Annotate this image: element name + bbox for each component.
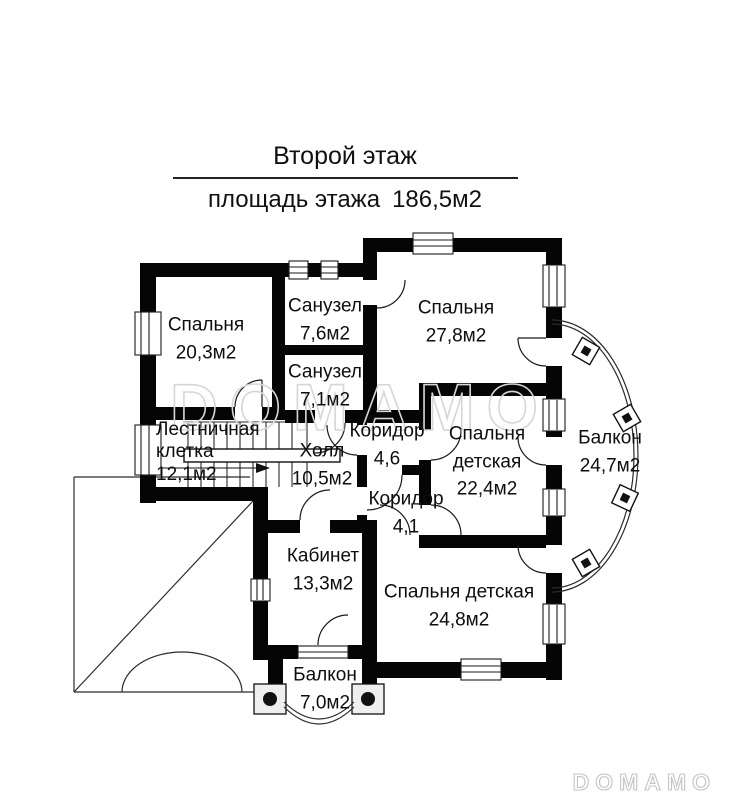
- room-area: 4,6: [349, 445, 424, 473]
- room-label-office: Кабинет 13,3м2: [287, 542, 359, 597]
- room-area: 10,5м2: [292, 465, 353, 493]
- floor-area-value: 186,5м2: [392, 186, 482, 213]
- room-name: Лестничная клетка: [156, 419, 278, 464]
- balcony-door-window: [298, 646, 348, 658]
- room-label-kids-bedroom-1: Спальня детская 22,4м2: [437, 421, 537, 504]
- room-label-balcony-right: Балкон 24,7м2: [578, 424, 642, 479]
- room-name: Спальня: [418, 294, 494, 322]
- window: [321, 261, 338, 279]
- window: [543, 489, 565, 516]
- room-label-hall: Холл 10,5м2: [292, 437, 353, 492]
- room-name: Спальня: [168, 311, 244, 339]
- room-area: 27,8м2: [418, 322, 494, 350]
- room-name: Холл: [292, 437, 353, 465]
- garage-roof-outline: [74, 477, 256, 692]
- window: [461, 659, 501, 680]
- room-label-corridor-1: Коридор 4,6: [349, 417, 424, 472]
- brand-logo: DOMAMO: [573, 769, 716, 795]
- balcony-post: [572, 337, 599, 364]
- window: [543, 265, 565, 307]
- room-name: Балкон: [293, 661, 357, 689]
- floor-area-subtitle: площадь этажа186,5м2: [130, 186, 560, 214]
- window: [543, 604, 565, 644]
- room-area: 24,7м2: [578, 452, 642, 480]
- room-area: 7,0м2: [293, 689, 357, 717]
- room-area: 7,1м2: [288, 386, 362, 414]
- balcony-post: [612, 485, 639, 512]
- room-label-bedroom-1: Спальня 20,3м2: [168, 311, 244, 366]
- room-name: Санузел: [288, 292, 362, 320]
- room-name: Спальня детская: [437, 421, 537, 476]
- room-label-bedroom-2: Спальня 27,8м2: [418, 294, 494, 349]
- window: [251, 579, 270, 601]
- room-name: Санузел: [288, 358, 362, 386]
- floor-area-label: площадь этажа: [208, 186, 380, 213]
- room-name: Кабинет: [287, 542, 359, 570]
- room-label-balcony-bottom: Балкон 7,0м2: [293, 661, 357, 716]
- window: [289, 261, 308, 279]
- room-name: Спальня детская: [384, 578, 534, 606]
- room-area: 22,4м2: [437, 476, 537, 504]
- room-label-corridor-2: Коридор 4,1: [368, 485, 443, 540]
- room-label-bathroom-1: Санузел 7,6м2: [288, 292, 362, 347]
- room-name: Балкон: [578, 424, 642, 452]
- page-title: Второй этаж: [130, 142, 560, 171]
- room-label-kids-bedroom-2: Спальня детская 24,8м2: [384, 578, 534, 633]
- room-area: 12,1м2: [156, 464, 278, 486]
- window: [135, 312, 161, 355]
- floor-plan-drawing: DOMAMO DOMAMO: [0, 0, 730, 800]
- room-name: Коридор: [349, 417, 424, 445]
- floor-plan-page: DOMAMO DOMAMO Второй этаж площадь этажа1…: [0, 0, 730, 800]
- title-divider: [173, 177, 518, 179]
- room-label-staircase: Лестничная клетка 12,1м2: [156, 419, 278, 486]
- room-area: 4,1: [368, 513, 443, 541]
- window: [413, 233, 453, 254]
- room-name: Коридор: [368, 485, 443, 513]
- room-area: 24,8м2: [384, 606, 534, 634]
- room-label-bathroom-2: Санузел 7,1м2: [288, 358, 362, 413]
- room-area: 20,3м2: [168, 339, 244, 367]
- room-area: 7,6м2: [288, 320, 362, 348]
- room-area: 13,3м2: [287, 570, 359, 598]
